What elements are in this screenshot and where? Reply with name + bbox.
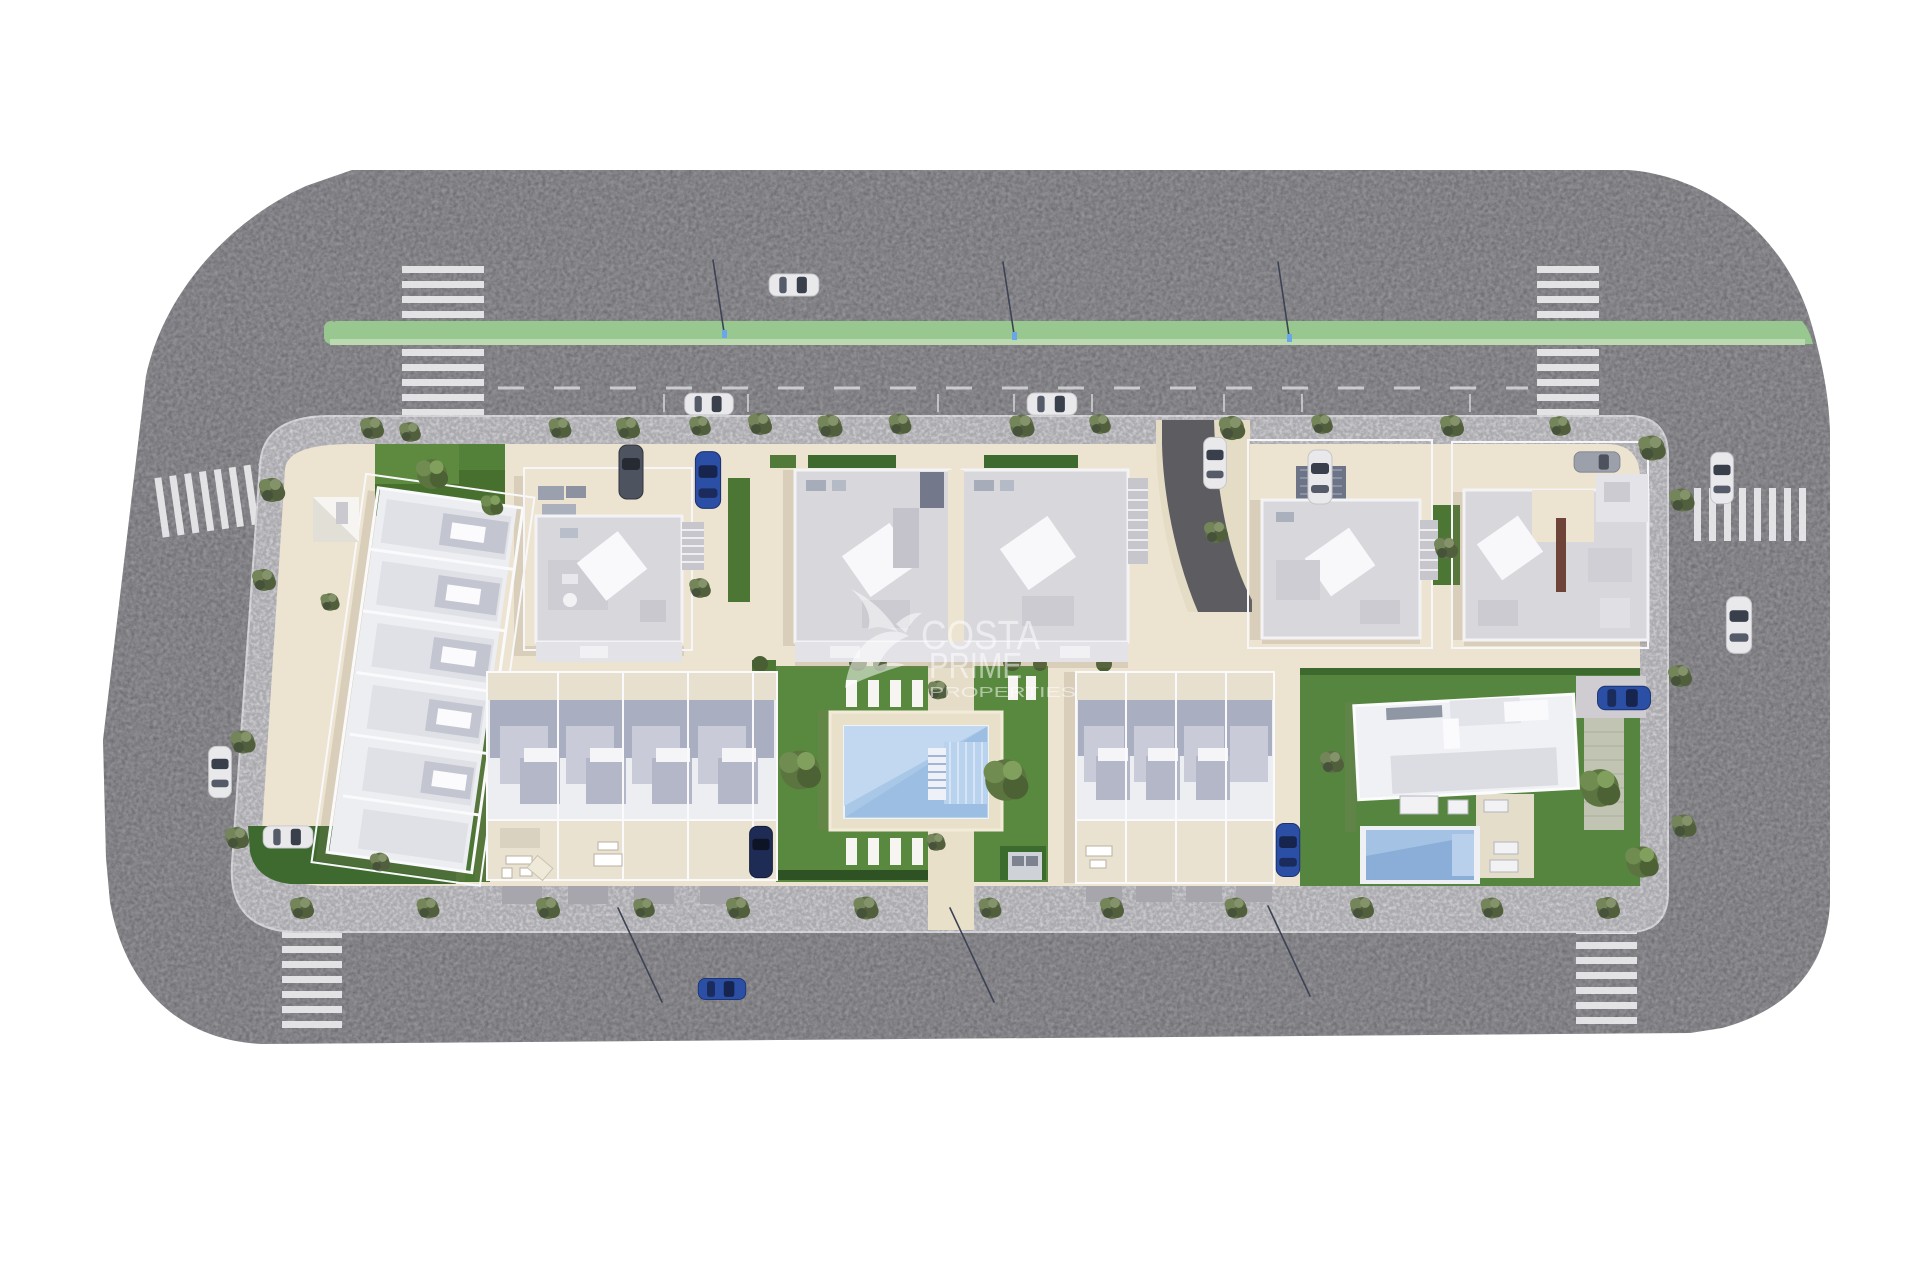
svg-text:PROPERTIES: PROPERTIES: [929, 684, 1076, 701]
svg-text:PRIME: PRIME: [929, 645, 1022, 686]
